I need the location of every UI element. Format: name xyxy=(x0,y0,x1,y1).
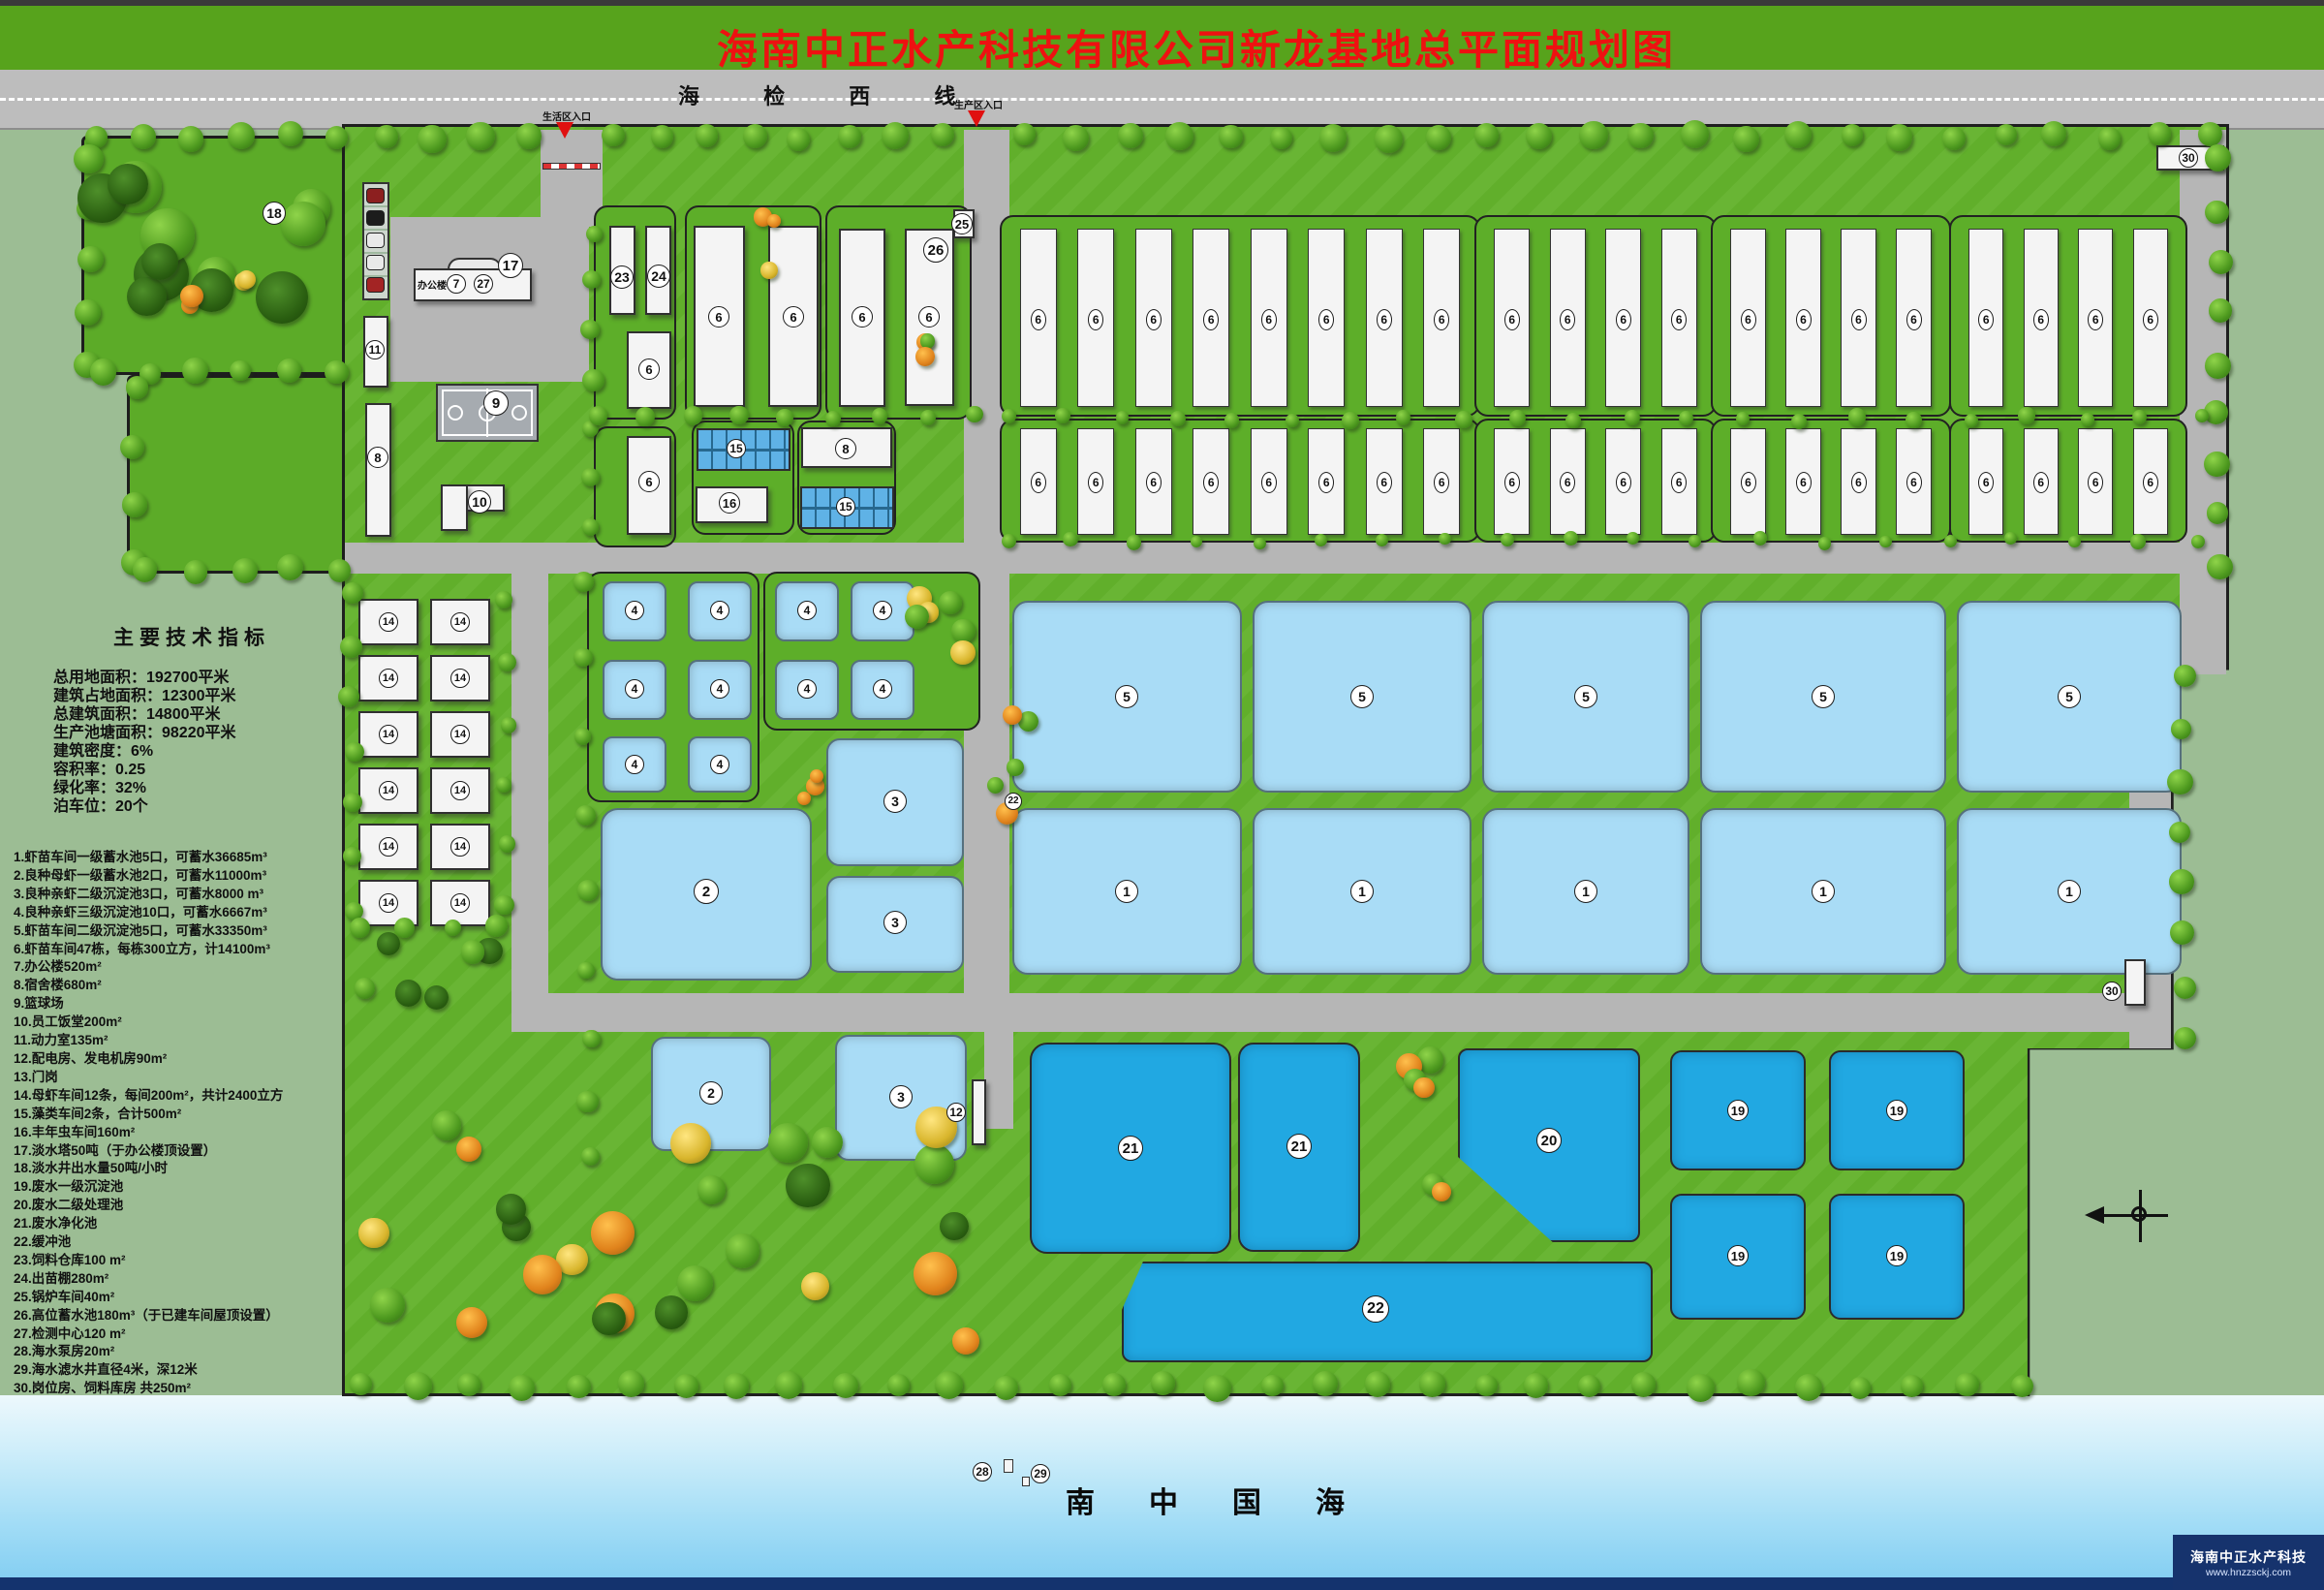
court-key-circle xyxy=(511,405,527,421)
tree xyxy=(1203,1375,1230,1402)
marker-20: 20 xyxy=(1536,1128,1562,1153)
marker-14: 14 xyxy=(450,725,470,744)
marker-16: 16 xyxy=(719,492,740,514)
legend-item: 2.良种母虾一级蓄水池2口，可蓄水11000m³ xyxy=(14,867,283,886)
tree xyxy=(677,1265,713,1301)
tree xyxy=(345,742,364,762)
entrance-living-arrow-icon xyxy=(556,122,573,139)
tree xyxy=(1753,531,1767,545)
tree xyxy=(1631,1372,1656,1396)
tree xyxy=(74,144,103,173)
legend-item: 7.办公楼520m² xyxy=(14,958,283,977)
marker-4: 4 xyxy=(710,601,729,620)
marker-4: 4 xyxy=(625,601,644,620)
legend-item: 13.门岗 xyxy=(14,1069,283,1087)
tree xyxy=(133,557,157,581)
tree xyxy=(370,1288,405,1323)
legend-item: 28.海水泵房20m² xyxy=(14,1343,283,1361)
tree xyxy=(328,559,351,581)
tree xyxy=(1365,1371,1390,1396)
legend-item: 24.出苗棚280m² xyxy=(14,1270,283,1289)
tree xyxy=(573,648,593,668)
tree xyxy=(466,122,495,151)
marker-4: 4 xyxy=(873,601,892,620)
marker-24: 24 xyxy=(647,265,670,288)
tree xyxy=(2205,353,2231,379)
internal-road xyxy=(984,1032,1013,1129)
marker-6: 6 xyxy=(1504,472,1520,493)
marker-6: 6 xyxy=(638,471,660,492)
marker-14: 14 xyxy=(379,725,398,744)
legend-item: 5.虾苗车间二级沉淀池5口，可蓄水33350m³ xyxy=(14,922,283,941)
tree xyxy=(1475,1375,1498,1397)
marker-14: 14 xyxy=(450,893,470,913)
court-key-circle xyxy=(448,405,463,421)
marker-6: 6 xyxy=(2033,472,2049,493)
indicator-line: 泊车位：20个 xyxy=(53,797,270,816)
compass-ring xyxy=(2131,1206,2147,1222)
technical-indicators-panel: 主要技术指标 总用地面积：192700平米建筑占地面积：12300平米总建筑面积… xyxy=(53,622,270,816)
marker-6: 6 xyxy=(1741,309,1756,330)
tree xyxy=(2207,502,2229,524)
tree xyxy=(232,558,258,583)
tree xyxy=(729,406,749,425)
tree xyxy=(2169,869,2194,894)
marker-6: 6 xyxy=(1796,309,1812,330)
legend-item: 23.饲料仓库100 m² xyxy=(14,1252,283,1270)
plan-title: 海南中正水产科技有限公司新龙基地总平面规划图 xyxy=(68,17,2324,77)
tree xyxy=(350,918,370,938)
marker-6: 6 xyxy=(1616,309,1631,330)
marker-6: 6 xyxy=(1796,472,1812,493)
tree xyxy=(1432,1182,1451,1201)
marker-19: 19 xyxy=(1727,1100,1749,1121)
marker-6: 6 xyxy=(1741,472,1756,493)
marker-2: 2 xyxy=(699,1081,723,1105)
marker-21: 21 xyxy=(1118,1136,1143,1161)
tree xyxy=(914,1252,957,1295)
marker-1: 1 xyxy=(1115,880,1138,903)
tree xyxy=(418,125,447,154)
tree xyxy=(2205,144,2231,171)
tree xyxy=(1002,534,1016,548)
tree xyxy=(1501,533,1514,546)
tree xyxy=(1127,535,1141,549)
power-house-12 xyxy=(972,1079,986,1145)
tree xyxy=(1944,535,1957,547)
tree xyxy=(940,1212,969,1241)
tree xyxy=(182,358,208,384)
tree xyxy=(494,895,513,915)
gate-barrier xyxy=(542,163,601,170)
tree xyxy=(1848,408,1866,425)
tree xyxy=(760,262,777,278)
tree xyxy=(589,406,608,425)
tree xyxy=(2004,532,2016,544)
tree xyxy=(350,1373,372,1395)
tree xyxy=(108,164,148,204)
marker-4: 4 xyxy=(873,679,892,699)
marker-21: 21 xyxy=(1286,1134,1312,1159)
tree xyxy=(2198,122,2222,146)
tree xyxy=(1564,531,1578,546)
tree xyxy=(655,1295,688,1328)
marker-4: 4 xyxy=(710,679,729,699)
tree xyxy=(812,1127,843,1158)
legend-item: 1.虾苗车间一级蓄水池5口，可蓄水36685m³ xyxy=(14,849,283,867)
tree xyxy=(1455,411,1472,428)
tree xyxy=(573,572,594,592)
tree xyxy=(950,640,975,665)
marker-18: 18 xyxy=(263,202,286,225)
indicator-line: 建筑密度：6% xyxy=(53,742,270,761)
marker-1: 1 xyxy=(1350,880,1374,903)
tree xyxy=(377,932,400,955)
tree xyxy=(395,980,421,1006)
marker-8: 8 xyxy=(367,447,388,468)
tree xyxy=(1579,121,1608,150)
tree xyxy=(2041,121,2066,146)
parked-car xyxy=(366,188,385,203)
tree xyxy=(2081,413,2094,426)
tree xyxy=(1102,1373,1126,1396)
tree xyxy=(786,1164,830,1208)
marker-14: 14 xyxy=(379,893,398,913)
marker-3: 3 xyxy=(883,790,907,813)
tree xyxy=(2174,977,2196,999)
tree xyxy=(2068,536,2081,548)
tree xyxy=(343,793,362,812)
marker-2: 2 xyxy=(694,879,719,904)
marker-6: 6 xyxy=(1906,472,1922,493)
marker-6: 6 xyxy=(2033,309,2049,330)
bottom-bar xyxy=(0,1577,2324,1590)
marker-4: 4 xyxy=(797,679,817,699)
marker-27: 27 xyxy=(474,274,493,294)
marker-19: 19 xyxy=(1886,1100,1907,1121)
internal-road xyxy=(511,993,2171,1032)
tree xyxy=(577,962,594,979)
internal-road xyxy=(541,130,603,227)
tree xyxy=(618,1370,645,1397)
legend-item: 26.高位蓄水池180m³（于已建车间屋顶设置） xyxy=(14,1307,283,1325)
marker-28: 28 xyxy=(973,1462,992,1481)
marker-11: 11 xyxy=(365,340,385,359)
legend-item: 4.良种亲虾三级沉淀池10口，可蓄水6667m³ xyxy=(14,904,283,922)
tree xyxy=(1627,532,1639,545)
marker-7: 7 xyxy=(447,274,466,294)
marker-6: 6 xyxy=(1851,472,1867,493)
legend-item: 25.锅炉车间40m² xyxy=(14,1289,283,1307)
marker-12: 12 xyxy=(946,1103,966,1122)
legend-item: 29.海水滤水井直径4米，深12米 xyxy=(14,1361,283,1380)
legend-item: 8.宿舍楼680m² xyxy=(14,977,283,995)
marker-22: 22 xyxy=(1005,793,1022,810)
tree xyxy=(228,122,255,149)
marker-6: 6 xyxy=(1377,309,1392,330)
marker-17: 17 xyxy=(498,253,523,278)
legend-item: 18.淡水井出水量50吨/小时 xyxy=(14,1160,283,1178)
tree xyxy=(127,277,167,317)
tree xyxy=(1191,536,1202,547)
tree xyxy=(277,554,303,580)
legend-item: 11.动力室135m² xyxy=(14,1032,283,1050)
marker-3: 3 xyxy=(883,911,907,934)
tree xyxy=(2174,1027,2196,1049)
tree xyxy=(1342,412,1359,429)
tree xyxy=(1116,411,1130,424)
canteen-10 xyxy=(441,484,468,531)
workshop-block xyxy=(1000,419,1480,543)
tree xyxy=(1313,1371,1338,1396)
tree xyxy=(602,124,624,146)
tree xyxy=(825,411,841,426)
sea-structure xyxy=(1022,1477,1030,1486)
logo-company-name: 海南中正水产科技 xyxy=(2190,1547,2307,1567)
tree xyxy=(1224,413,1240,428)
indicator-line: 总用地面积：192700平米 xyxy=(53,669,270,687)
tree xyxy=(256,271,308,324)
tree xyxy=(567,1375,590,1398)
road-centerline xyxy=(0,98,2324,101)
tree xyxy=(1818,537,1832,550)
legend-item: 14.母虾车间12条，每间200m²，共计2400立方 xyxy=(14,1087,283,1106)
marker-5: 5 xyxy=(1115,685,1138,708)
marker-6: 6 xyxy=(1906,309,1922,330)
tree xyxy=(516,123,542,148)
tree xyxy=(180,285,202,307)
tree xyxy=(1687,1374,1715,1402)
parked-car xyxy=(366,277,385,293)
tree xyxy=(325,360,348,384)
tree xyxy=(768,1123,808,1163)
tree xyxy=(1784,121,1812,148)
tree xyxy=(776,409,793,426)
tree xyxy=(581,1147,600,1166)
marker-6: 6 xyxy=(2143,309,2158,330)
tree xyxy=(131,124,156,149)
marker-6: 6 xyxy=(1261,309,1277,330)
tree xyxy=(775,1371,803,1399)
marker-14: 14 xyxy=(450,669,470,688)
tree xyxy=(582,518,600,536)
tree xyxy=(1901,1375,1923,1397)
marker-6: 6 xyxy=(1616,472,1631,493)
tree xyxy=(2130,534,2146,549)
legend-item: 21.废水净化池 xyxy=(14,1215,283,1233)
tree xyxy=(501,717,517,733)
tree xyxy=(591,1211,635,1255)
tree xyxy=(1270,127,1292,149)
sea-structure xyxy=(1004,1459,1013,1473)
tree xyxy=(499,835,515,852)
legend-item: 22.缓冲池 xyxy=(14,1233,283,1252)
dormitory-8 xyxy=(365,403,391,537)
marker-1: 1 xyxy=(1574,880,1597,903)
marker-6: 6 xyxy=(1031,472,1046,493)
tree xyxy=(2169,822,2190,843)
tree xyxy=(496,1194,526,1224)
tree xyxy=(355,978,376,999)
entrance-production-label: 生产区入口 xyxy=(954,97,1003,111)
marker-6: 6 xyxy=(1146,309,1162,330)
tree xyxy=(1261,1375,1284,1397)
logo-website: www.hnzzsckj.com xyxy=(2206,1567,2291,1578)
tree xyxy=(592,1302,625,1335)
marker-23: 23 xyxy=(610,265,634,289)
tree xyxy=(1906,412,1922,428)
marker-4: 4 xyxy=(710,755,729,774)
tree xyxy=(2195,409,2209,422)
marker-6: 6 xyxy=(783,306,804,327)
company-logo: 海南中正水产科技 www.hnzzsckj.com xyxy=(2173,1535,2324,1590)
workshop-block xyxy=(1000,215,1480,417)
legend-item: 9.篮球场 xyxy=(14,995,283,1013)
parked-car xyxy=(366,233,385,248)
marker-14: 14 xyxy=(450,837,470,857)
parked-car xyxy=(366,255,385,270)
tree xyxy=(674,1374,698,1398)
marker-6: 6 xyxy=(1261,472,1277,493)
marker-5: 5 xyxy=(1812,685,1835,708)
tree xyxy=(1526,123,1552,149)
marker-15: 15 xyxy=(836,497,855,516)
marker-26: 26 xyxy=(923,237,948,263)
entrance-living-label: 生活区入口 xyxy=(542,109,591,123)
indicator-line: 总建筑面积：14800平米 xyxy=(53,705,270,724)
tree xyxy=(651,125,674,148)
tree xyxy=(1063,125,1089,151)
tree xyxy=(523,1255,562,1294)
tree xyxy=(1170,411,1186,426)
tree xyxy=(1413,1077,1434,1098)
marker-14: 14 xyxy=(379,612,398,632)
marker-22: 22 xyxy=(1362,1295,1389,1323)
legend-panel: 1.虾苗车间一级蓄水池5口，可蓄水36685m³2.良种母虾一级蓄水池2口，可蓄… xyxy=(14,849,283,1398)
marker-6: 6 xyxy=(2143,472,2158,493)
tree xyxy=(670,1123,711,1164)
tree xyxy=(2174,665,2196,687)
guard-store-30 xyxy=(2124,959,2146,1006)
tree xyxy=(582,270,601,289)
tree xyxy=(1118,123,1143,148)
tree xyxy=(90,359,116,385)
legend-item: 12.配电房、发电机房90m² xyxy=(14,1050,283,1069)
parked-car xyxy=(366,210,385,226)
tree xyxy=(358,1218,389,1249)
tree xyxy=(1165,122,1193,150)
entrance-production-arrow-icon xyxy=(968,110,985,127)
compass-icon xyxy=(2085,1188,2174,1246)
marker-19: 19 xyxy=(1886,1245,1907,1266)
tree xyxy=(277,359,301,383)
marker-1: 1 xyxy=(1812,880,1835,903)
marker-10: 10 xyxy=(468,490,491,514)
legend-item: 27.检测中心120 m² xyxy=(14,1325,283,1344)
tree xyxy=(343,847,361,865)
tree xyxy=(2132,410,2147,424)
marker-4: 4 xyxy=(625,679,644,699)
tree xyxy=(456,1137,481,1162)
tree xyxy=(1049,1374,1071,1396)
tree xyxy=(2209,298,2233,323)
tree xyxy=(743,124,767,148)
marker-5: 5 xyxy=(2058,685,2081,708)
tree xyxy=(838,125,861,148)
tree xyxy=(931,123,954,146)
marker-14: 14 xyxy=(379,781,398,800)
tree xyxy=(914,1144,954,1184)
tree xyxy=(2171,719,2191,739)
tree xyxy=(2167,769,2193,795)
tree xyxy=(2098,127,2121,149)
legend-item: 10.员工饭堂200m² xyxy=(14,1013,283,1032)
tree xyxy=(1319,124,1348,152)
legend-item: 15.藻类车间2条，合计500m² xyxy=(14,1106,283,1124)
legend-item: 19.废水一级沉淀池 xyxy=(14,1178,283,1197)
tree xyxy=(1733,126,1759,152)
tree xyxy=(935,1371,963,1399)
marker-6: 6 xyxy=(708,306,729,327)
marker-4: 4 xyxy=(797,601,817,620)
tree xyxy=(951,619,975,642)
legend-item: 30.岗位房、饲料库房 共250m² xyxy=(14,1380,283,1398)
tree xyxy=(1842,124,1863,145)
tree xyxy=(801,1272,829,1300)
marker-6: 6 xyxy=(1377,472,1392,493)
tree xyxy=(1396,410,1410,424)
indicator-line: 容积率：0.25 xyxy=(53,761,270,779)
tree xyxy=(1474,123,1499,147)
marker-14: 14 xyxy=(450,612,470,632)
tree xyxy=(1879,536,1892,548)
marker-6: 6 xyxy=(852,306,873,327)
tree xyxy=(586,226,603,242)
tree xyxy=(1565,413,1581,428)
tree xyxy=(581,468,600,486)
tree xyxy=(887,1374,910,1396)
legend-item: 17.淡水塔50吨（于办公楼顶设置） xyxy=(14,1142,283,1161)
tree xyxy=(456,1307,487,1338)
tree xyxy=(178,126,204,152)
tree xyxy=(1849,1377,1871,1398)
tree xyxy=(1942,127,1966,150)
marker-14: 14 xyxy=(379,837,398,857)
tree xyxy=(575,805,596,826)
tree xyxy=(126,376,148,398)
indicator-line: 生产池塘面积：98220平米 xyxy=(53,724,270,742)
tree xyxy=(2205,201,2228,224)
marker-8: 8 xyxy=(835,438,856,459)
legend-item: 16.丰年虫车间160m² xyxy=(14,1124,283,1142)
marker-1: 1 xyxy=(2058,880,2081,903)
tree xyxy=(696,124,718,146)
tree xyxy=(577,880,599,901)
indicators-title: 主要技术指标 xyxy=(113,622,270,651)
marker-6: 6 xyxy=(638,359,660,380)
marker-9: 9 xyxy=(483,390,509,416)
tree xyxy=(1737,1369,1765,1397)
indicator-line: 绿化率：32% xyxy=(53,779,270,797)
tree xyxy=(872,408,888,424)
marker-3: 3 xyxy=(889,1085,913,1108)
tree xyxy=(325,126,348,148)
green-area xyxy=(127,375,345,574)
tree xyxy=(2209,250,2233,274)
indicator-line: 建筑占地面积：12300平米 xyxy=(53,687,270,705)
tree xyxy=(1524,1373,1549,1398)
tree xyxy=(1151,1371,1175,1395)
